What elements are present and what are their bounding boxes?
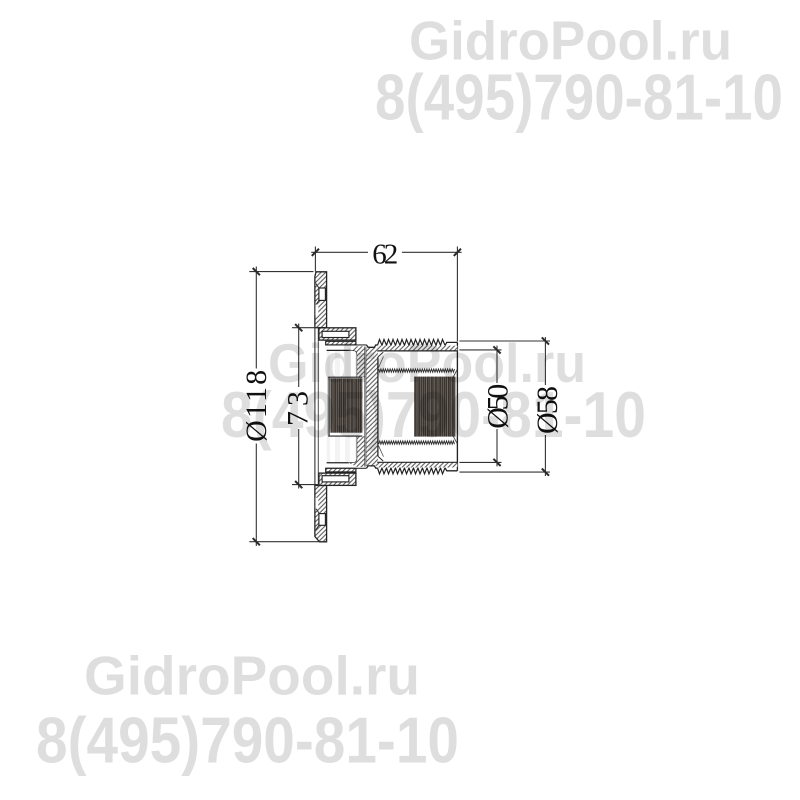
svg-text:GidroPool.ru: GidroPool.ru: [84, 645, 420, 707]
svg-text:8(495)790-81-10: 8(495)790-81-10: [375, 61, 783, 134]
svg-text:62: 62: [372, 239, 398, 271]
svg-text:8(495)790-81-10: 8(495)790-81-10: [221, 378, 646, 451]
svg-text:8(495)790-81-10: 8(495)790-81-10: [36, 704, 459, 777]
